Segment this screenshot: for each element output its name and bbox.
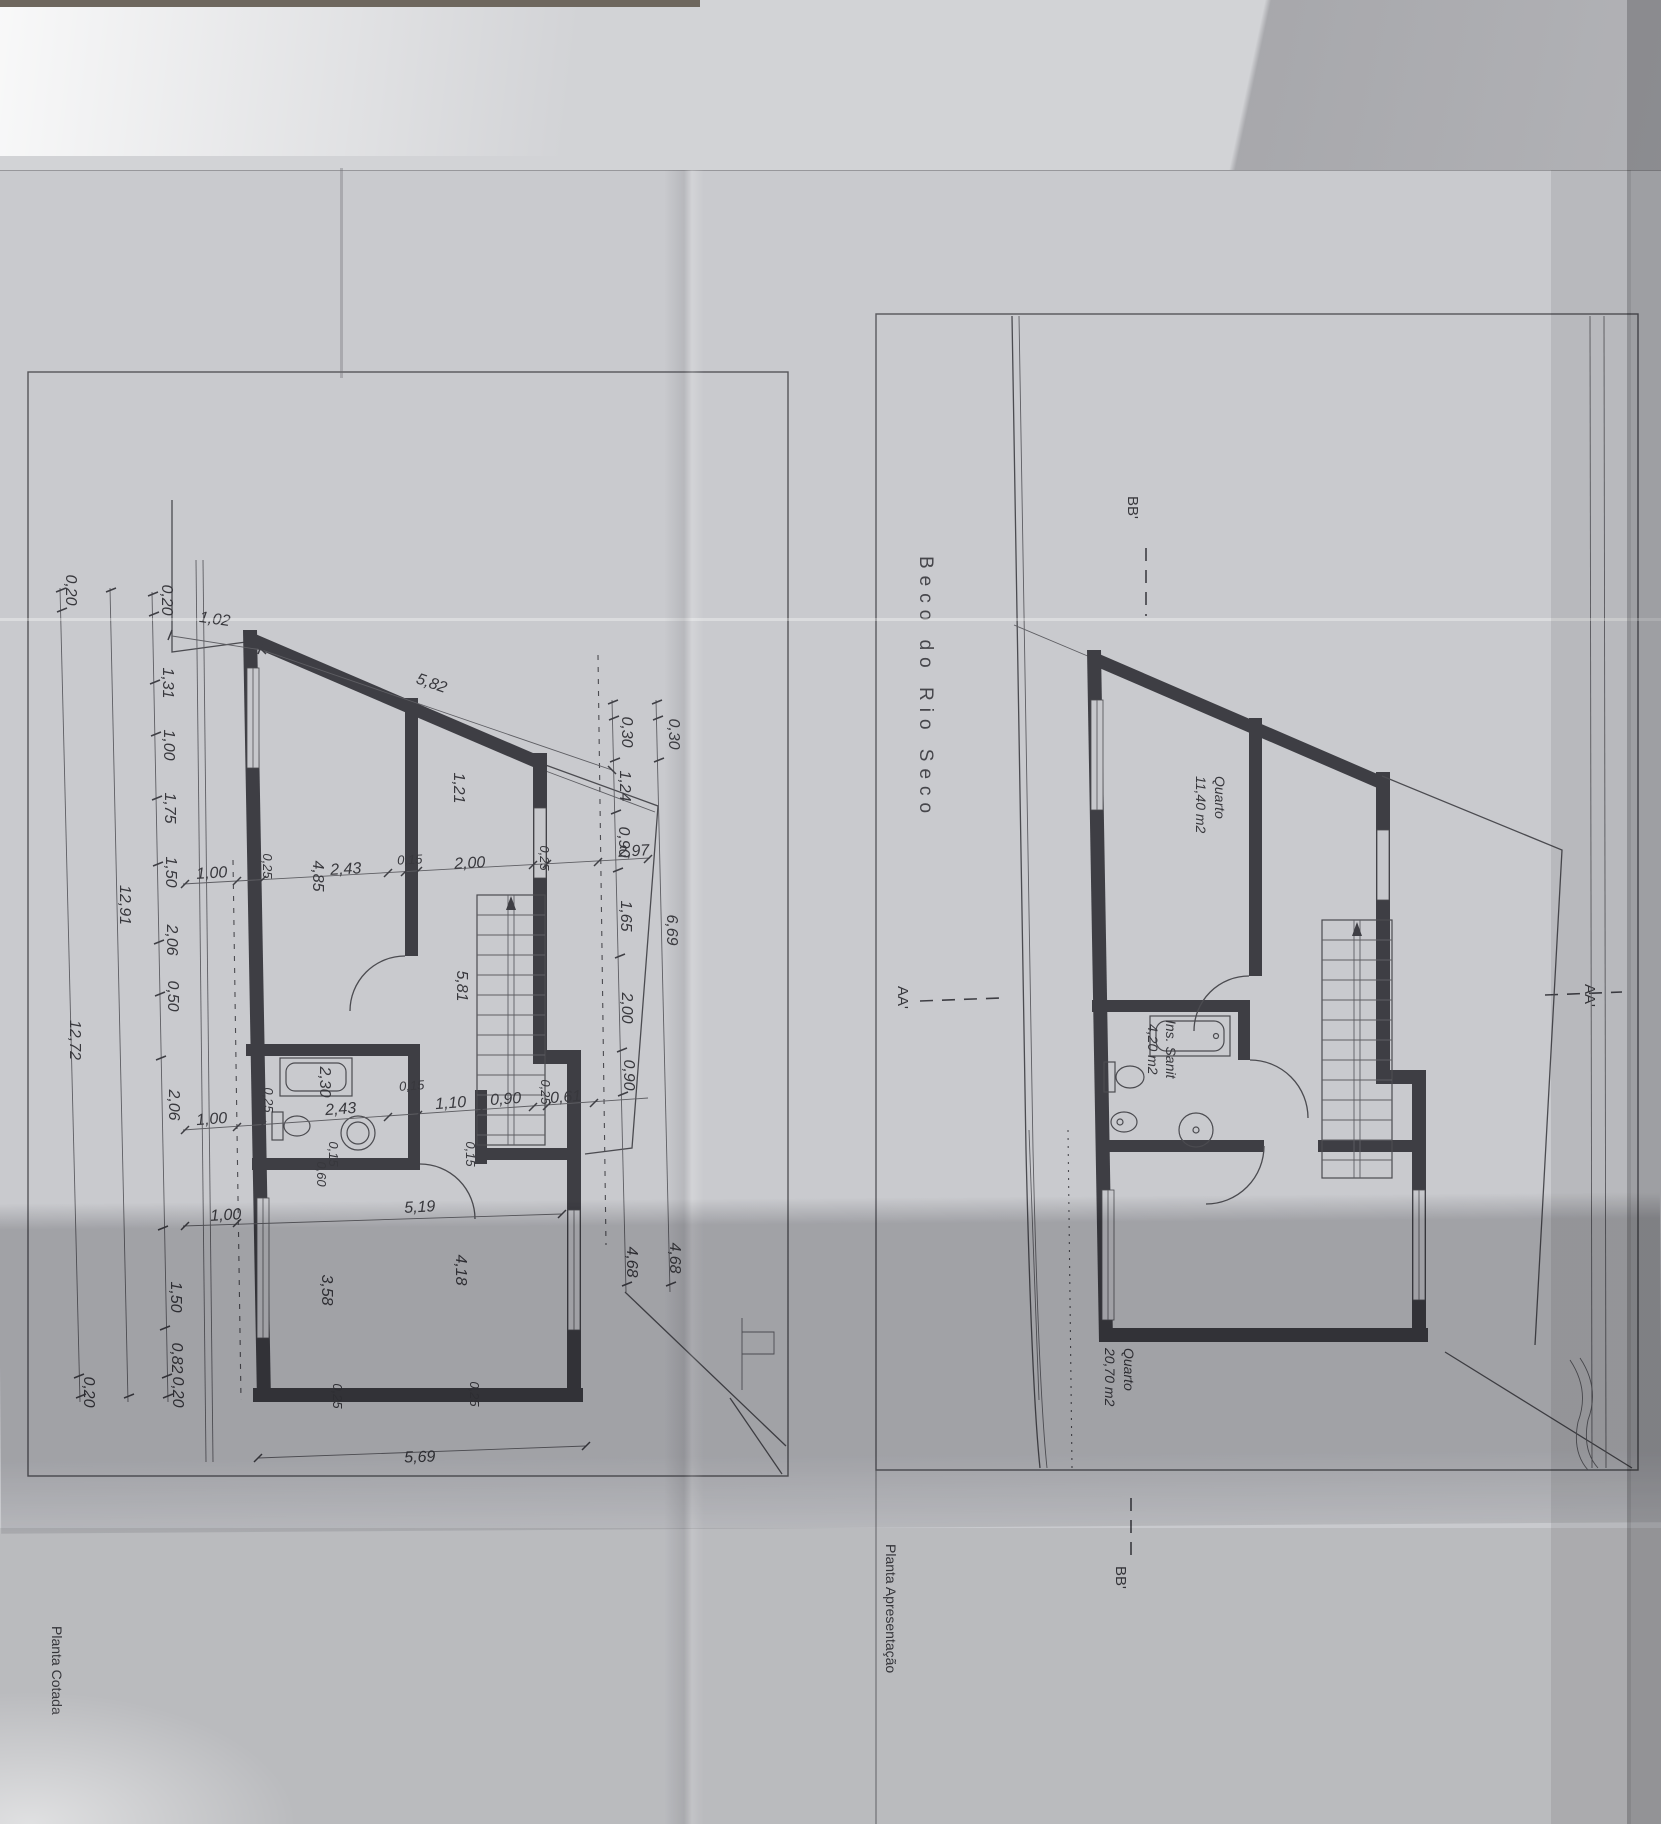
total-dim-label: 12,72 bbox=[66, 1020, 83, 1060]
dim-label: 4,18 bbox=[452, 1254, 469, 1285]
dim-label: 1,00 bbox=[210, 1206, 242, 1225]
toilet-icon bbox=[272, 1112, 310, 1140]
section-label-bb: BB' bbox=[1124, 496, 1141, 519]
dim-label: 0,90 bbox=[615, 826, 632, 857]
plan-drawing: 1,02 5,82 0,20 1,31 1,00 1,75 1,50 2,06 … bbox=[0, 0, 1661, 1824]
dim-label: 3,58 bbox=[318, 1274, 335, 1305]
wall bbox=[480, 1148, 581, 1160]
wall bbox=[246, 630, 540, 770]
dim-label: 0,82 bbox=[168, 1342, 185, 1373]
dim-label: 0,15 bbox=[463, 1141, 478, 1167]
wall bbox=[253, 1388, 583, 1402]
dim-label: 1,02 bbox=[198, 609, 231, 630]
room-name-label: Quarto bbox=[1212, 776, 1228, 819]
dim-label: 5,82 bbox=[414, 671, 449, 697]
dim-label: 1,50 bbox=[162, 856, 179, 887]
wall bbox=[405, 698, 418, 956]
street-boundary-lines bbox=[1012, 316, 1090, 1468]
street-name-label: Beco do Rio Seco bbox=[915, 556, 936, 820]
dim-label: 0,60 bbox=[314, 1161, 329, 1187]
wall bbox=[1376, 772, 1390, 1084]
dim-label: 1,65 bbox=[617, 900, 634, 931]
dim-label: 0,20 bbox=[158, 584, 175, 615]
stair-direction-arrow-icon bbox=[506, 896, 516, 910]
section-label-aa: AA' bbox=[894, 986, 911, 1009]
wall bbox=[1238, 1012, 1250, 1060]
dim-label: 6,69 bbox=[663, 914, 680, 945]
dim-label: 4,68 bbox=[666, 1242, 683, 1273]
dim-label: 0,30 bbox=[618, 716, 635, 747]
wall bbox=[1099, 1328, 1428, 1342]
wall bbox=[1092, 1000, 1250, 1012]
total-dim-label: 12,91 bbox=[116, 885, 133, 925]
dim-label: 2,06 bbox=[163, 923, 180, 955]
dim-label: 0,20 bbox=[169, 1376, 186, 1407]
dim-label: 5,69 bbox=[404, 1448, 436, 1466]
dim-label: 0,25 bbox=[467, 1381, 482, 1407]
dim-label: 4,68 bbox=[623, 1246, 640, 1277]
dim-label: 0,25 bbox=[537, 845, 552, 871]
room-name-label: Quarto bbox=[1121, 1348, 1137, 1391]
house-walls bbox=[1087, 650, 1428, 1342]
dim-label: 1,75 bbox=[161, 792, 178, 823]
dim-label: 0,25 bbox=[261, 1087, 276, 1113]
dim-label: 1,50 bbox=[167, 1281, 184, 1312]
dim-label: 2,00 bbox=[453, 854, 486, 873]
window bbox=[1377, 830, 1389, 900]
wall bbox=[1318, 1140, 1426, 1152]
dimension-lines bbox=[56, 588, 676, 1462]
washbasin-icon bbox=[341, 1116, 375, 1150]
bathtub-icon bbox=[1150, 1016, 1230, 1056]
section-label-bb: BB' bbox=[1112, 1566, 1129, 1589]
dim-label: 0,15 bbox=[397, 851, 424, 867]
dim-label: 1,00 bbox=[160, 729, 177, 760]
dim-label: 0,50 bbox=[164, 980, 181, 1011]
dim-label: 2,43 bbox=[324, 1100, 357, 1119]
dim-label: 5,19 bbox=[404, 1198, 436, 1217]
dim-label: 0,25 bbox=[330, 1383, 345, 1409]
section-label-aa: AA' bbox=[1581, 984, 1598, 1007]
dim-label: 2,43 bbox=[329, 860, 362, 879]
dim-label: 0,20 bbox=[62, 574, 79, 605]
room-area-label: 4,20 m2 bbox=[1145, 1024, 1161, 1075]
photographed-floor-plan-sheet: 1,02 5,82 0,20 1,31 1,00 1,75 1,50 2,06 … bbox=[0, 0, 1661, 1824]
plan-title-planta-apresentacao: Planta Apresentação bbox=[883, 1544, 899, 1673]
wall bbox=[408, 1056, 420, 1164]
wall bbox=[1090, 650, 1382, 790]
dim-label: 0,30 bbox=[665, 718, 682, 749]
dim-label: 1,00 bbox=[196, 864, 228, 883]
dim-label: 1,10 bbox=[435, 1094, 467, 1113]
room-area-label: 20,70 m2 bbox=[1102, 1347, 1118, 1407]
house-walls bbox=[243, 630, 583, 1402]
room-area-label: 11,40 m2 bbox=[1193, 776, 1209, 834]
wall bbox=[1096, 1140, 1264, 1152]
dim-label: 0,90 bbox=[490, 1090, 522, 1109]
dim-label: 1,24 bbox=[616, 770, 633, 801]
right-sheet-planta-apresentacao: Beco do Rio Seco BB' AA' AA' BB' bbox=[876, 314, 1638, 1824]
dim-label: 2,30 bbox=[316, 1065, 333, 1097]
bidet-icon bbox=[1111, 1112, 1137, 1132]
dimension-labels: 1,02 5,82 0,20 1,31 1,00 1,75 1,50 2,06 … bbox=[62, 574, 683, 1466]
section-markers: BB' AA' AA' BB' bbox=[894, 496, 1622, 1589]
toilet-icon bbox=[1104, 1062, 1144, 1092]
wall bbox=[246, 1044, 420, 1056]
dim-label: 0,90 bbox=[620, 1059, 637, 1090]
room-name-label: Ins. Sanit bbox=[1163, 1020, 1179, 1079]
left-sheet-planta-cotada: 1,02 5,82 0,20 1,31 1,00 1,75 1,50 2,06 … bbox=[28, 372, 788, 1715]
dim-label: 0,61 bbox=[550, 1088, 582, 1107]
stair-direction-arrow-icon bbox=[1352, 922, 1362, 936]
dim-label: 1,31 bbox=[159, 667, 176, 698]
dim-label: 4,85 bbox=[309, 860, 326, 891]
room-labels: Quarto 11,40 m2 Ins. Sanit 4,20 m2 Quart… bbox=[1102, 776, 1228, 1407]
dim-label: 0,20 bbox=[80, 1376, 97, 1407]
dim-label: 2,06 bbox=[165, 1088, 182, 1120]
dim-label: 0,15 bbox=[399, 1077, 426, 1094]
plan-title-planta-cotada: Planta Cotada bbox=[49, 1626, 65, 1715]
dim-label: 0,25 bbox=[260, 853, 275, 879]
dim-label: 5,81 bbox=[453, 970, 470, 1001]
dim-label: 1,21 bbox=[450, 772, 467, 803]
dim-label: 2,00 bbox=[618, 991, 635, 1023]
wall bbox=[1249, 718, 1262, 976]
dim-label: 1,00 bbox=[196, 1110, 228, 1129]
